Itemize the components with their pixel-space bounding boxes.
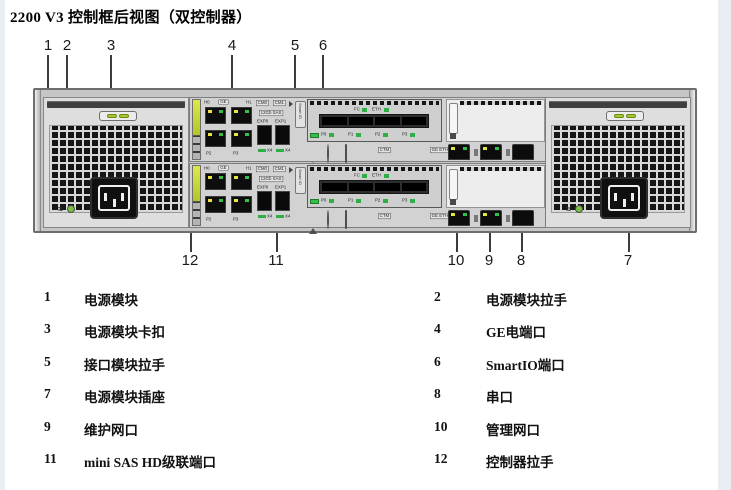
manual-figure-page: 2200 V3 控制框后视图（双控制器） 1 2 3 4 5 6 12 11 1… [0, 0, 731, 490]
mounting-ear-left [35, 90, 41, 231]
power-indicator [327, 211, 339, 229]
power-module-right: ≈ [545, 97, 691, 228]
power-socket-face [98, 185, 130, 211]
port-led [383, 199, 388, 203]
alarm-indicator [309, 211, 321, 229]
power-module-handle [47, 101, 185, 108]
activity-led [219, 133, 223, 136]
sas-led [276, 215, 284, 218]
smartio-port [322, 117, 347, 125]
link-led [234, 199, 238, 202]
callout-8: 8 [510, 252, 532, 269]
eth-label: ETH [372, 107, 381, 112]
x4-label: X4 [285, 148, 290, 153]
ge-port [231, 173, 252, 190]
port-led [329, 199, 334, 203]
ac-mark: ≈ [58, 204, 63, 214]
filler-panel [446, 165, 545, 208]
power-socket [90, 177, 138, 219]
interface-module-handle: Smart IO [295, 101, 306, 128]
activity-led [495, 213, 499, 216]
link-led [234, 110, 238, 113]
smartio-module: FC ETH P0 P1 P2 P3 [307, 165, 442, 208]
fc-label: FC [354, 107, 360, 112]
ge-port [205, 173, 226, 190]
legend-label: GE电端口 [486, 321, 546, 341]
port-label-p3: P3 [233, 217, 238, 222]
battery-icon [345, 144, 347, 163]
arrow-right-icon [289, 101, 293, 107]
link-led [234, 176, 238, 179]
ge-port [205, 196, 226, 213]
serial-port [512, 210, 534, 226]
mini-sas-hd-port [275, 125, 290, 145]
latch-dot [614, 114, 624, 118]
link-led [208, 133, 212, 136]
activity-led [245, 176, 249, 179]
smartio-port-label: P1 [348, 132, 353, 137]
controller-status-strip: CTM GE ETH [295, 209, 545, 228]
link-led [208, 199, 212, 202]
smartio-tab-label: Smart IO [298, 103, 302, 119]
legend-label: 电源模块 [84, 289, 138, 309]
legend-label: SmartIO端口 [486, 354, 565, 374]
activity-led [219, 110, 223, 113]
enclosure-rear-view: ≈ ≈ [33, 88, 697, 233]
controller-handle [192, 99, 201, 160]
power-socket-face [608, 185, 640, 211]
port-label-h1: H1 [246, 100, 252, 105]
link-led [451, 213, 455, 216]
eth-mode-led [384, 174, 389, 178]
sas-led [258, 215, 266, 218]
smartio-port-label: P3 [402, 132, 407, 137]
psu-status-led [575, 205, 583, 213]
smartio-port-label: P2 [375, 132, 380, 137]
legend-num: 10 [434, 419, 458, 435]
activity-led [463, 213, 467, 216]
psu-led-row: ≈ [566, 204, 583, 214]
smartio-tab-label: Smart IO [298, 169, 302, 185]
power-module-latch [606, 111, 644, 121]
smartio-port [322, 183, 347, 191]
legend-num: 5 [44, 354, 68, 370]
socket-pin [614, 193, 617, 201]
ge-eth-label: GE ETH [430, 213, 450, 219]
vent-holes [460, 167, 542, 171]
vent-holes [460, 101, 542, 105]
legend-num: 12 [434, 451, 458, 467]
exp0-label: EXP0 [257, 119, 268, 124]
vent-holes [310, 101, 439, 105]
smartio-port-group [319, 180, 429, 194]
port-label-p2: P2 [206, 217, 211, 222]
legend-num: 9 [44, 419, 68, 435]
psu-led-row: ≈ [58, 204, 75, 214]
ge-ports-block: H0 GE H1 P2 P3 [203, 98, 255, 161]
module-power-led [310, 199, 319, 204]
ge-port [231, 107, 252, 124]
ge-badge: GE [218, 165, 229, 171]
power-module-handle [549, 101, 687, 108]
callout-10: 10 [445, 252, 467, 269]
maintenance-port [480, 144, 502, 160]
port-label-h1: H1 [246, 166, 252, 171]
controller-b: H0 GE H1 P2 P3 CM0 CM1 12Gb SAS EXP0 [189, 163, 546, 228]
smartio-port [349, 117, 374, 125]
controller-handle-base [193, 136, 200, 160]
port-led [410, 199, 415, 203]
legend-label: 电源模块拉手 [486, 289, 567, 309]
port-label-p2: P2 [206, 151, 211, 156]
power-module-left: ≈ [43, 97, 189, 228]
wrench-icon [474, 149, 478, 156]
smartio-port-label: P0 [321, 132, 326, 137]
activity-led [245, 110, 249, 113]
controller-handle-base [193, 202, 200, 226]
battery-icon [345, 210, 347, 229]
bbu-indicator [345, 211, 357, 229]
callout-4: 4 [221, 37, 243, 54]
x4-label: X4 [267, 148, 272, 153]
smartio-port-label: P0 [321, 198, 326, 203]
serial-port-icon [506, 149, 510, 156]
maintenance-port [480, 210, 502, 226]
filler-latch [449, 169, 458, 200]
smartio-port [402, 117, 427, 125]
ge-port [231, 196, 252, 213]
page-edge-left [0, 0, 5, 490]
activity-led [245, 199, 249, 202]
activity-led [245, 133, 249, 136]
legend-num: 8 [434, 386, 458, 402]
power-socket [600, 177, 648, 219]
link-led [208, 110, 212, 113]
x4-label: X4 [267, 214, 272, 219]
cm0-label: CM0 [256, 166, 269, 172]
sas-speed-label: 12Gb SAS [259, 176, 283, 182]
wrench-icon [474, 215, 478, 222]
smartio-port-group [319, 114, 429, 128]
activity-led [219, 199, 223, 202]
legend-label: 电源模块卡扣 [84, 321, 165, 341]
port-label-p3: P3 [233, 151, 238, 156]
cm1-label: CM1 [273, 100, 286, 106]
link-led [451, 147, 455, 150]
legend-num: 1 [44, 289, 68, 305]
bbu-indicator [345, 145, 357, 163]
serial-port [512, 144, 534, 160]
page-edge-right [718, 0, 731, 490]
filler-latch [449, 103, 458, 134]
power-icon [327, 144, 329, 163]
socket-pin [623, 199, 626, 207]
smartio-port [375, 117, 400, 125]
filler-screw [450, 199, 456, 205]
socket-pin [113, 199, 116, 207]
callout-6: 6 [312, 37, 334, 54]
callout-7: 7 [617, 252, 639, 269]
callout-12: 12 [179, 252, 201, 269]
legend-label: 管理网口 [486, 419, 540, 439]
port-led [356, 133, 361, 137]
sas-led [276, 149, 284, 152]
smartio-port [349, 183, 374, 191]
activity-led [219, 176, 223, 179]
controller-bay: H0 GE H1 P2 P3 CM0 CM1 12Gb SAS EXP0 [189, 97, 546, 228]
legend-label: 电源模块插座 [84, 386, 165, 406]
port-led [410, 133, 415, 137]
ge-port [205, 107, 226, 124]
callout-11: 11 [265, 252, 287, 269]
smartio-port-label: P1 [348, 198, 353, 203]
sas-ports-block: CM0 CM1 12Gb SAS EXP0 EXP1 X4 X4 [256, 98, 294, 161]
psu-status-led [67, 205, 75, 213]
socket-pin [121, 193, 124, 201]
x4-label: X4 [285, 214, 290, 219]
legend-num: 6 [434, 354, 458, 370]
link-led [483, 147, 487, 150]
sas-speed-label: 12Gb SAS [259, 110, 283, 116]
callout-3: 3 [100, 37, 122, 54]
eth-mode-led [384, 108, 389, 112]
power-module-latch [99, 111, 137, 121]
figure-title: 2200 V3 控制框后视图（双控制器） [10, 6, 252, 27]
controller-status-strip: CTM GE ETH [295, 143, 545, 162]
legend-label: 接口模块拉手 [84, 354, 165, 374]
ctm-label: CTM [378, 213, 391, 219]
smartio-port [375, 183, 400, 191]
sas-led [258, 149, 266, 152]
exp1-label: EXP1 [275, 185, 286, 190]
serial-port-icon [506, 215, 510, 222]
controller-handle [192, 165, 201, 226]
controller-handle-grip [193, 166, 200, 202]
alarm-indicator [309, 145, 321, 163]
sas-ports-block: CM0 CM1 12Gb SAS EXP0 EXP1 X4 X4 [256, 164, 294, 227]
callout-9: 9 [478, 252, 500, 269]
ge-ports-block: H0 GE H1 P2 P3 [203, 164, 255, 227]
smartio-port-label: P3 [402, 198, 407, 203]
legend-num: 7 [44, 386, 68, 402]
ctm-label: CTM [378, 147, 391, 153]
smartio-port-label: P2 [375, 198, 380, 203]
legend-label: 串口 [486, 386, 513, 406]
port-led [383, 133, 388, 137]
eth-label: ETH [372, 173, 381, 178]
link-led [234, 133, 238, 136]
filler-panel [446, 99, 545, 142]
port-label-h0: H0 [204, 166, 210, 171]
ge-port [231, 130, 252, 147]
ac-mark: ≈ [566, 204, 571, 214]
module-power-led [310, 133, 319, 138]
latch-dot [626, 114, 636, 118]
port-led [356, 199, 361, 203]
legend-label: 控制器拉手 [486, 451, 554, 471]
warning-icon [309, 211, 317, 234]
cm1-label: CM1 [273, 166, 286, 172]
fc-mode-led [362, 108, 367, 112]
legend-num: 11 [44, 451, 68, 467]
management-port [448, 210, 470, 226]
fc-mode-led [362, 174, 367, 178]
management-port [448, 144, 470, 160]
latch-dot [107, 114, 117, 118]
legend-label: 维护网口 [84, 419, 138, 439]
smartio-port [402, 183, 427, 191]
legend-label: mini SAS HD级联端口 [84, 451, 216, 471]
power-icon [327, 210, 329, 229]
arrow-right-icon [289, 167, 293, 173]
controller-a: H0 GE H1 P2 P3 CM0 CM1 12Gb SAS EXP0 [189, 97, 546, 162]
link-led [483, 213, 487, 216]
port-led [329, 133, 334, 137]
socket-pin [631, 193, 634, 201]
activity-led [495, 147, 499, 150]
ge-badge: GE [218, 99, 229, 105]
filler-screw [450, 133, 456, 139]
link-led [208, 176, 212, 179]
mini-sas-hd-port [257, 191, 272, 211]
activity-led [463, 147, 467, 150]
power-indicator [327, 145, 339, 163]
callout-2: 2 [56, 37, 78, 54]
latch-dot [119, 114, 129, 118]
controller-handle-grip [193, 100, 200, 136]
port-label-h0: H0 [204, 100, 210, 105]
mini-sas-hd-port [275, 191, 290, 211]
fc-label: FC [354, 173, 360, 178]
legend-num: 3 [44, 321, 68, 337]
cm0-label: CM0 [256, 100, 269, 106]
smartio-module: FC ETH P0 P1 P2 P3 [307, 99, 442, 142]
legend-num: 2 [434, 289, 458, 305]
legend-num: 4 [434, 321, 458, 337]
ge-port [205, 130, 226, 147]
vent-holes [310, 167, 439, 171]
callout-5: 5 [284, 37, 306, 54]
ge-eth-label: GE ETH [430, 147, 450, 153]
exp0-label: EXP0 [257, 185, 268, 190]
exp1-label: EXP1 [275, 119, 286, 124]
socket-pin [104, 193, 107, 201]
mini-sas-hd-port [257, 125, 272, 145]
interface-module-handle: Smart IO [295, 167, 306, 194]
